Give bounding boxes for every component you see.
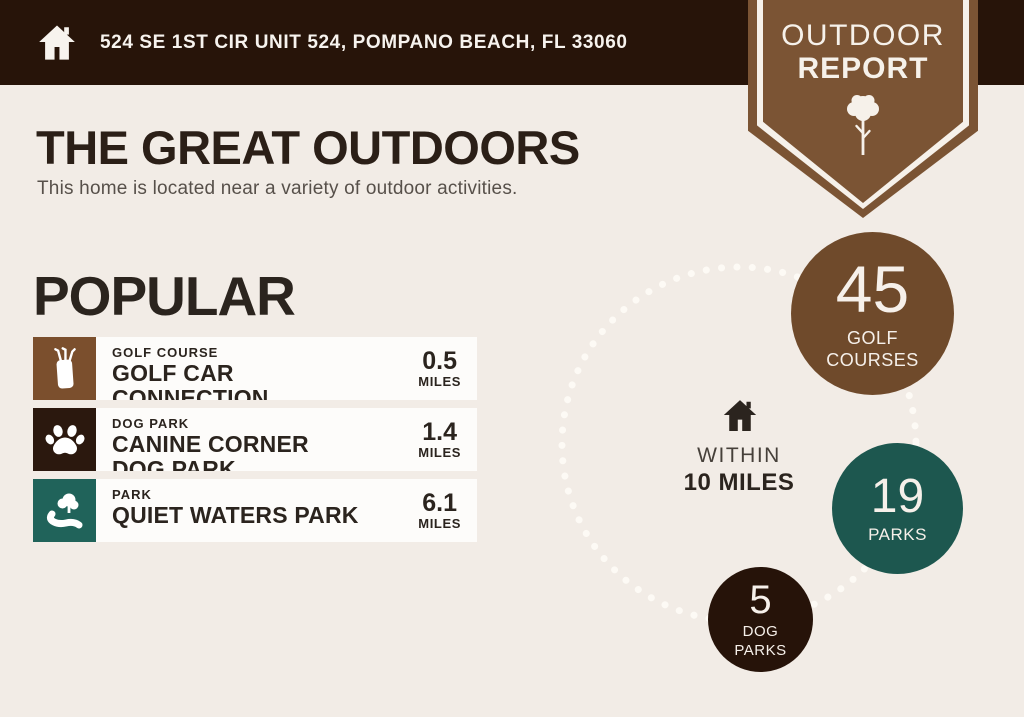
radius-label-line2: 10 MILES [639, 469, 839, 497]
stat-value: 45 [836, 255, 909, 324]
home-icon [720, 397, 760, 435]
badge-title-line2: REPORT [797, 52, 928, 85]
radius-label-line1: WITHIN [639, 444, 839, 468]
outdoor-report-page: 524 SE 1ST CIR UNIT 524, POMPANO BEACH, … [0, 0, 1024, 717]
property-address: 524 SE 1ST CIR UNIT 524, POMPANO BEACH, … [100, 32, 628, 54]
outdoor-report-badge: OUTDOOR REPORT [748, 0, 978, 218]
stat-label: GOLF COURSES [815, 327, 931, 372]
stat-circle-dog-parks: 5 DOG PARKS [708, 567, 813, 672]
stat-label: DOG PARKS [729, 623, 793, 661]
radius-label: WITHIN 10 MILES [639, 444, 839, 497]
stat-value: 5 [749, 579, 771, 621]
badge-title-line1: OUTDOOR [781, 20, 945, 52]
stat-label: PARKS [868, 524, 927, 545]
home-icon [36, 22, 78, 64]
stat-circle-golf-courses: 45 GOLF COURSES [791, 232, 954, 395]
tree-icon [840, 93, 886, 159]
stat-circle-parks: 19 PARKS [832, 443, 963, 574]
stat-value: 19 [871, 472, 924, 522]
